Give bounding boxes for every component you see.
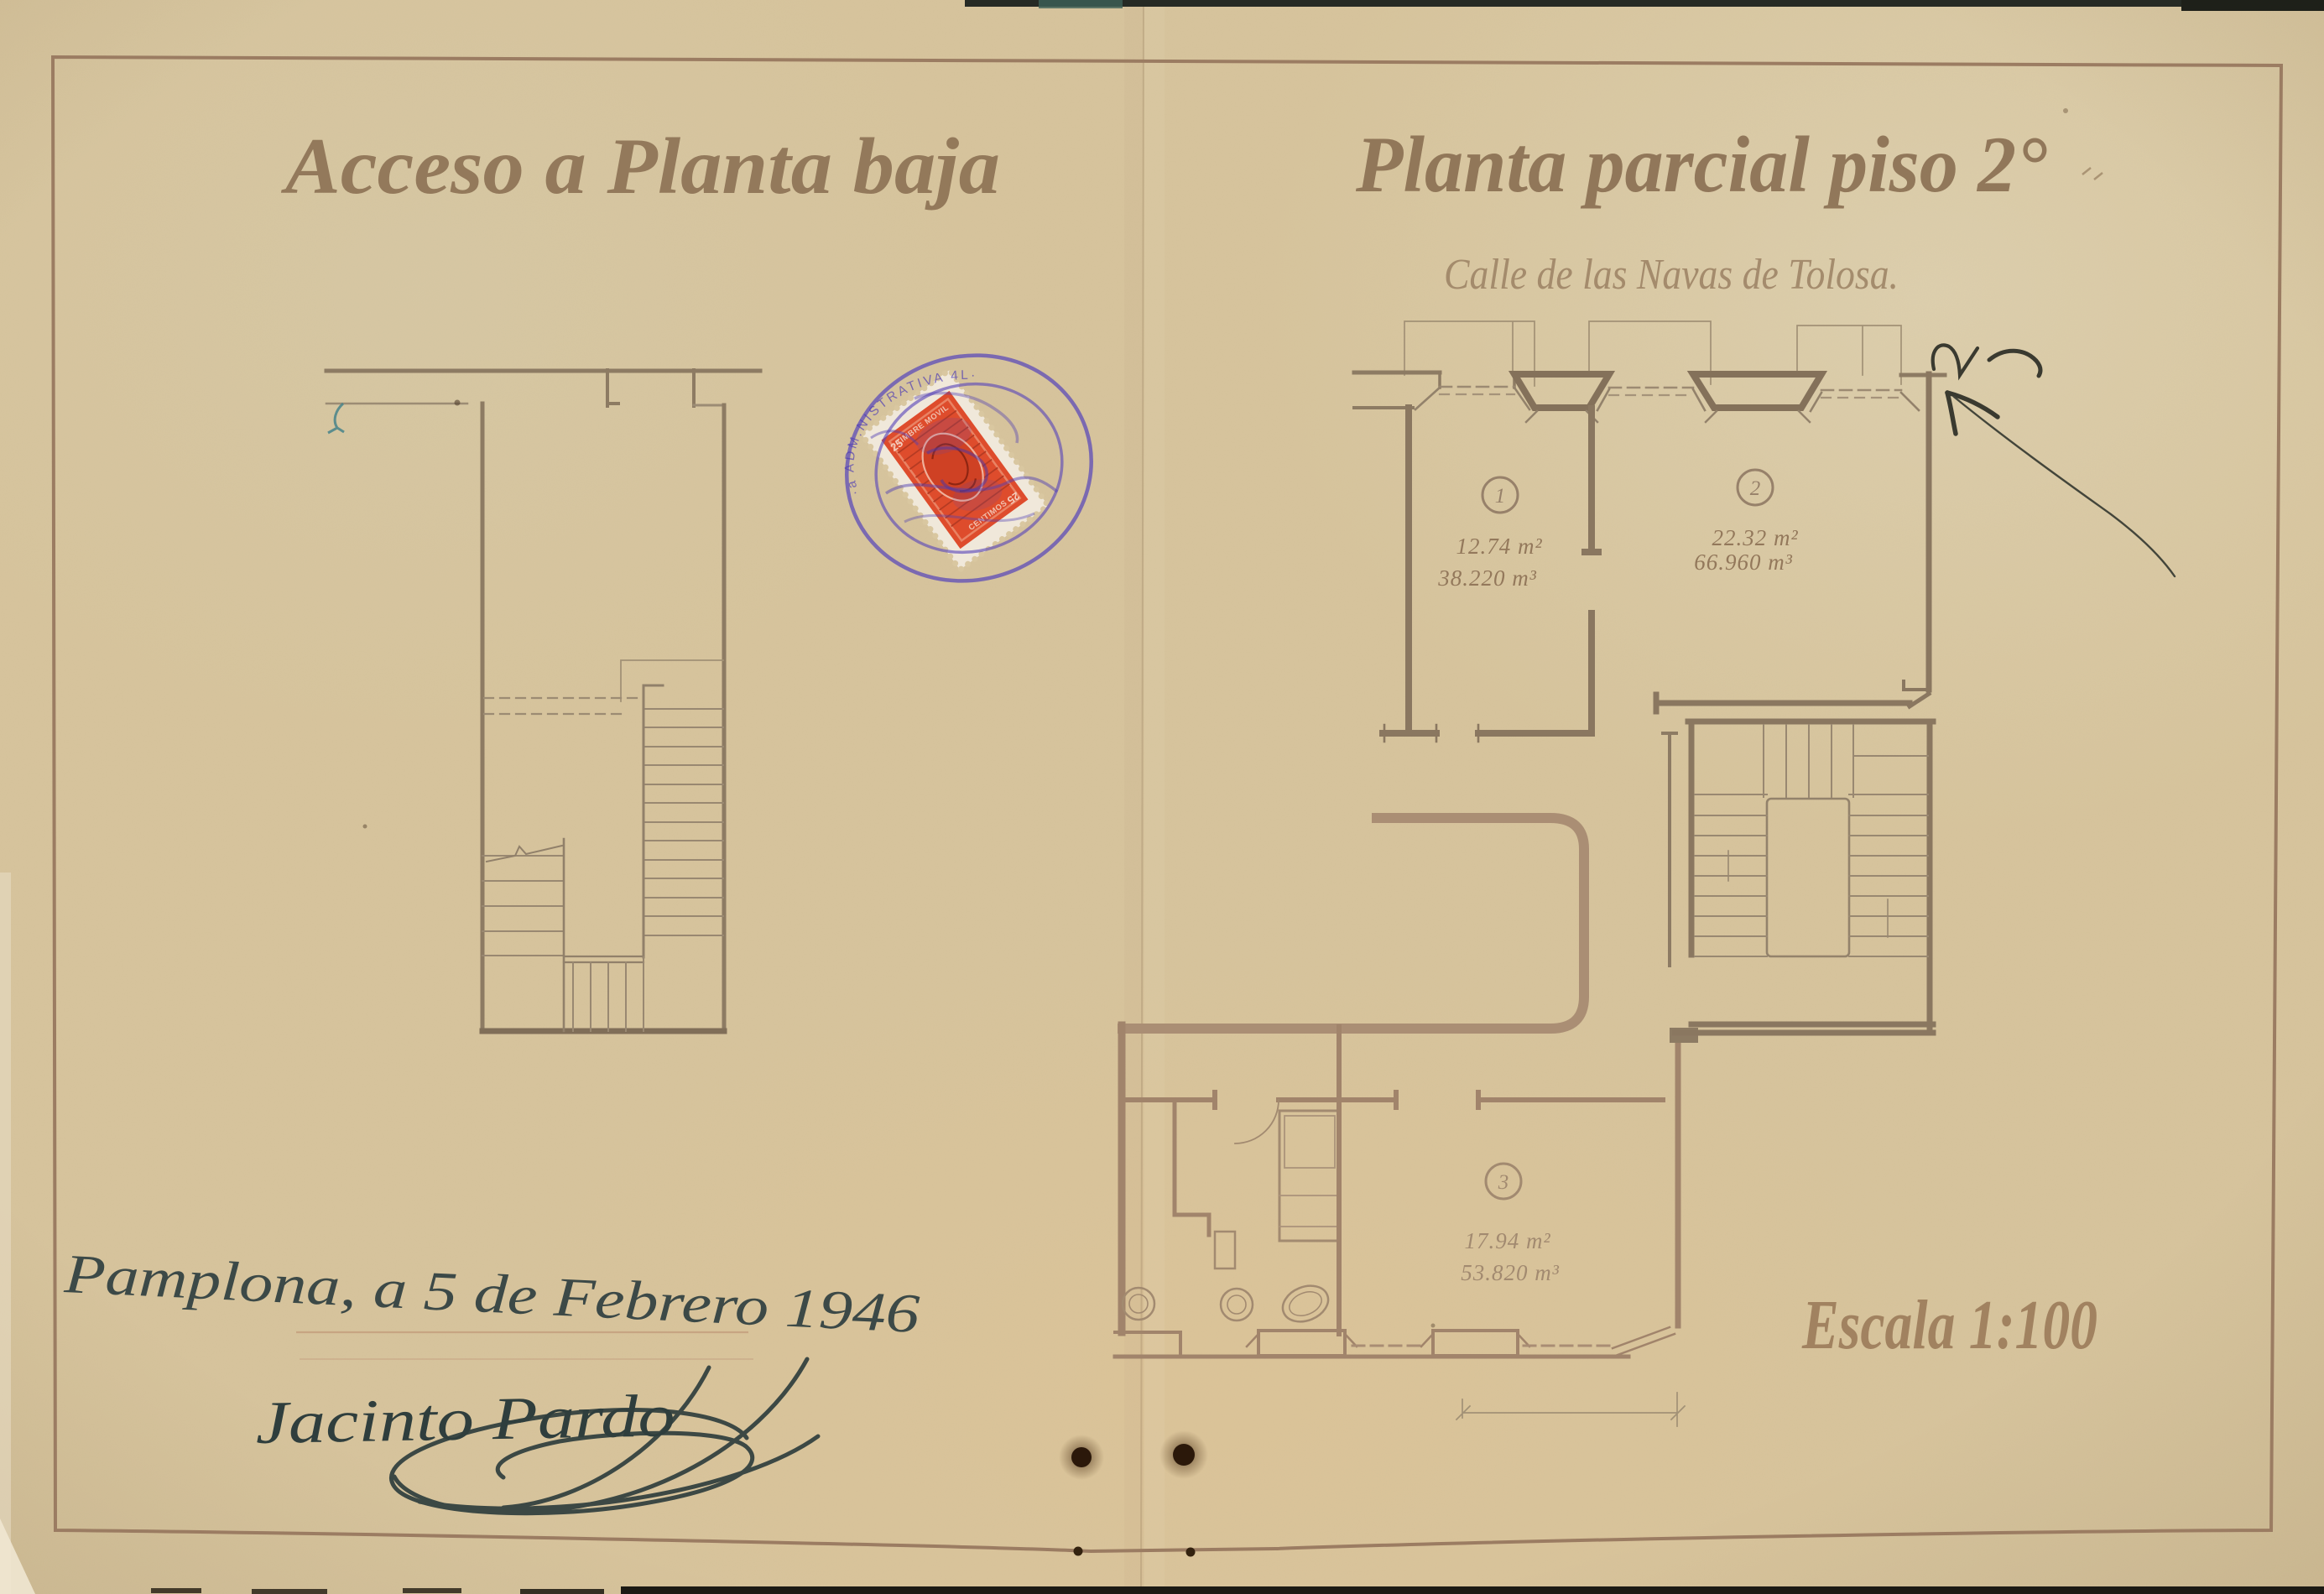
svg-text:53.820 m³: 53.820 m³: [1461, 1260, 1560, 1285]
svg-text:12.74 m²: 12.74 m²: [1456, 534, 1542, 559]
svg-text:3: 3: [1498, 1171, 1509, 1194]
svg-text:Calle de las Navas de Tolosa.: Calle de las Navas de Tolosa.: [1444, 251, 1899, 299]
svg-text:17.94 m²: 17.94 m²: [1464, 1228, 1550, 1253]
svg-text:Planta parcial piso 2°: Planta parcial piso 2°: [1355, 120, 2047, 209]
svg-text:Jacinto Pardo: Jacinto Pardo: [255, 1382, 675, 1456]
svg-text:Acceso a Planta baja: Acceso a Planta baja: [281, 122, 1000, 211]
svg-text:1: 1: [1495, 485, 1506, 508]
svg-text:66.960 m³: 66.960 m³: [1694, 550, 1793, 575]
svg-text:38.220 m³: 38.220 m³: [1437, 565, 1537, 591]
svg-text:Escala 1:100: Escala 1:100: [1801, 1286, 2097, 1364]
svg-text:2: 2: [1750, 477, 1761, 500]
svg-text:22.32 m²: 22.32 m²: [1712, 525, 1798, 550]
